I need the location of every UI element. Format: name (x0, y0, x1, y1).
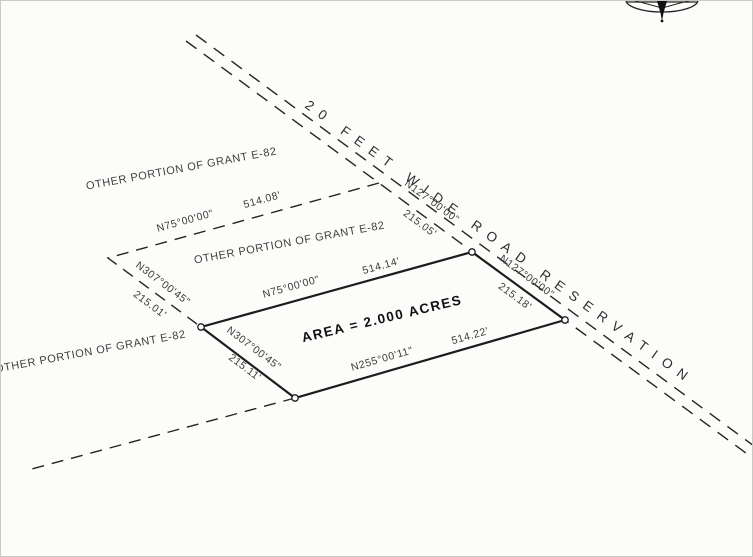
distance-left-upper: 215.01' (131, 288, 169, 321)
bearing-top-outer: N75°00'00" (155, 208, 215, 235)
vertex-marker-west (198, 324, 204, 330)
boundary-extension-dashed-line (28, 398, 295, 470)
vertex-marker-north (469, 249, 475, 255)
distance-top-outer: 514.08' (242, 189, 282, 211)
plat-sheet: OTHER PORTION OF GRANT E-82 OTHER PORTIO… (0, 0, 753, 557)
grant-label-3: OTHER PORTION OF GRANT E-82 (1, 329, 187, 376)
plat-drawing: OTHER PORTION OF GRANT E-82 OTHER PORTIO… (1, 1, 753, 557)
grant-label-1: OTHER PORTION OF GRANT E-82 (85, 146, 278, 193)
vertex-marker-south (292, 395, 298, 401)
vertex-marker-east (562, 317, 568, 323)
north-arrow-icon (626, 1, 698, 22)
